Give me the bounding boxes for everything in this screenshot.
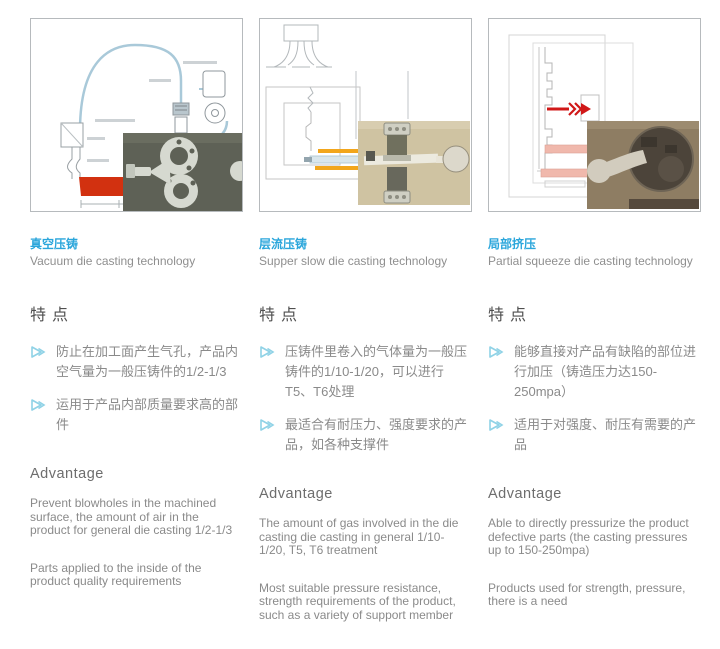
features-heading: 特点 bbox=[259, 301, 472, 325]
feature-item: 能够直接对产品有缺陷的部位进行加压（铸造压力达150-250mpa） bbox=[488, 342, 701, 402]
double-chevron-icon bbox=[259, 417, 275, 433]
advantage-text: Prevent blowholes in the machined surfac… bbox=[30, 497, 240, 538]
column-title-english: Vacuum die casting technology bbox=[30, 254, 243, 268]
advantage-text: Parts applied to the inside of the produ… bbox=[30, 562, 240, 589]
feature-item: 防止在加工面产生气孔，产品内空气量为一般压铸件的1/2-1/3 bbox=[30, 342, 243, 382]
partial-squeeze-schematic-drawing bbox=[489, 19, 700, 211]
casting-photo-inset bbox=[358, 121, 470, 205]
advantage-heading: Advantage bbox=[30, 466, 243, 482]
column-title-chinese: 真空压铸 bbox=[30, 235, 243, 252]
advantage-text: Products used for strength, pressure, th… bbox=[488, 582, 698, 609]
feature-item: 运用于产品内部质量要求高的部件 bbox=[30, 395, 243, 435]
advantage-text: Most suitable pressure resistance, stren… bbox=[259, 582, 469, 623]
double-chevron-icon bbox=[259, 344, 275, 360]
super-slow-die-casting-diagram bbox=[259, 18, 472, 212]
advantage-heading: Advantage bbox=[488, 486, 701, 502]
double-chevron-icon bbox=[30, 344, 46, 360]
feature-item: 压铸件里卷入的气体量为一般压铸件的1/10-1/20，可以进行T5、T6处理 bbox=[259, 342, 472, 402]
feature-text: 运用于产品内部质量要求高的部件 bbox=[56, 395, 243, 435]
feature-text: 最适合有耐压力、强度要求的产品，如各种支撑件 bbox=[285, 415, 472, 455]
column-title-chinese: 局部挤压 bbox=[488, 235, 701, 252]
feature-item: 适用于对强度、耐压有需要的产品 bbox=[488, 415, 701, 455]
column-vacuum-die-casting: 真空压铸 Vacuum die casting technology 特点 防止… bbox=[30, 18, 243, 622]
technology-columns: 真空压铸 Vacuum die casting technology 特点 防止… bbox=[30, 18, 720, 622]
feature-item: 最适合有耐压力、强度要求的产品，如各种支撑件 bbox=[259, 415, 472, 455]
column-partial-squeeze: 局部挤压 Partial squeeze die casting technol… bbox=[488, 18, 701, 622]
feature-text: 压铸件里卷入的气体量为一般压铸件的1/10-1/20，可以进行T5、T6处理 bbox=[285, 342, 472, 402]
advantage-text: Able to directly pressurize the product … bbox=[488, 517, 698, 558]
advantage-text: The amount of gas involved in the die ca… bbox=[259, 517, 469, 558]
features-heading: 特点 bbox=[30, 301, 243, 325]
slow-casting-schematic-drawing bbox=[260, 19, 471, 211]
feature-text: 能够直接对产品有缺陷的部位进行加压（铸造压力达150-250mpa） bbox=[514, 342, 701, 402]
vacuum-schematic-drawing bbox=[31, 19, 242, 211]
double-chevron-icon bbox=[30, 397, 46, 413]
column-title-english: Supper slow die casting technology bbox=[259, 254, 472, 268]
vacuum-die-casting-diagram bbox=[30, 18, 243, 212]
advantage-heading: Advantage bbox=[259, 486, 472, 502]
partial-squeeze-diagram bbox=[488, 18, 701, 212]
double-chevron-icon bbox=[488, 344, 504, 360]
casting-photo-inset bbox=[123, 133, 242, 211]
column-title-english: Partial squeeze die casting technology bbox=[488, 254, 701, 268]
feature-text: 防止在加工面产生气孔，产品内空气量为一般压铸件的1/2-1/3 bbox=[56, 342, 243, 382]
feature-text: 适用于对强度、耐压有需要的产品 bbox=[514, 415, 701, 455]
casting-photo-inset bbox=[587, 121, 699, 209]
features-heading: 特点 bbox=[488, 301, 701, 325]
column-title-chinese: 层流压铸 bbox=[259, 235, 472, 252]
column-super-slow-die-casting: 层流压铸 Supper slow die casting technology … bbox=[259, 18, 472, 622]
brochure-page: 真空压铸 Vacuum die casting technology 特点 防止… bbox=[0, 0, 720, 649]
double-chevron-icon bbox=[488, 417, 504, 433]
